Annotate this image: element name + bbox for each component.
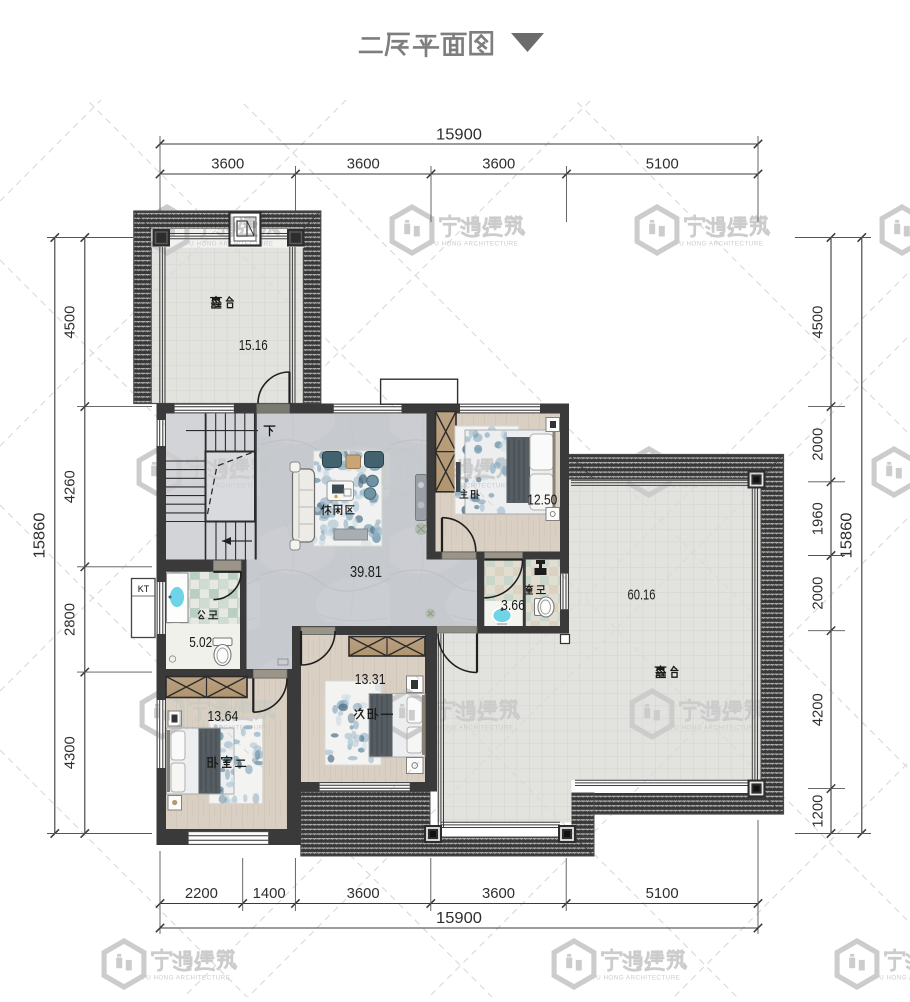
svg-text:15900: 15900: [436, 910, 482, 927]
svg-text:39.81: 39.81: [350, 564, 382, 581]
svg-text:YU HONG ARCHITECTURE: YU HONG ARCHITECTURE: [142, 975, 231, 982]
svg-text:YU HONG ARCHITECTURE: YU HONG ARCHITECTURE: [675, 241, 764, 248]
svg-text:YU HONG ARCHITECTURE: YU HONG ARCHITECTURE: [422, 483, 511, 490]
svg-text:5.02: 5.02: [189, 634, 212, 651]
svg-text:4200: 4200: [810, 693, 827, 726]
svg-text:15900: 15900: [436, 127, 482, 144]
svg-text:15860: 15860: [839, 512, 856, 558]
svg-text:1960: 1960: [810, 502, 827, 535]
svg-text:4260: 4260: [62, 470, 79, 503]
svg-text:13.31: 13.31: [355, 671, 386, 688]
svg-text:3.66: 3.66: [501, 597, 525, 614]
svg-text:1200: 1200: [810, 795, 827, 828]
svg-text:2800: 2800: [62, 603, 79, 636]
svg-text:YU HONG ARCHITECTURE: YU HONG ARCHITECTURE: [670, 725, 759, 732]
svg-text:YU HONG ARCHITECTURE: YU HONG ARCHITECTURE: [875, 975, 910, 982]
svg-text:12.50: 12.50: [527, 492, 557, 509]
svg-text:YU HONG ARCHITECTURE: YU HONG ARCHITECTURE: [425, 725, 514, 732]
svg-text:YU HONG ARCHITECTURE: YU HONG ARCHITECTURE: [430, 241, 519, 248]
svg-text:3600: 3600: [347, 156, 380, 173]
svg-text:4500: 4500: [62, 306, 79, 339]
svg-text:4300: 4300: [62, 736, 79, 769]
svg-text:2000: 2000: [810, 577, 827, 610]
svg-text:3600: 3600: [482, 885, 515, 902]
svg-text:YU HONG ARCHITECTURE: YU HONG ARCHITECTURE: [185, 241, 274, 248]
svg-text:2000: 2000: [810, 428, 827, 461]
svg-text:2200: 2200: [185, 885, 218, 902]
svg-text:15.16: 15.16: [239, 337, 268, 354]
svg-text:KT: KT: [138, 584, 150, 594]
svg-text:YU HONG ARCHITECTURE: YU HONG ARCHITECTURE: [667, 483, 756, 490]
svg-text:YU HONG ARCHITECTURE: YU HONG ARCHITECTURE: [180, 725, 269, 732]
svg-text:5100: 5100: [646, 885, 679, 902]
svg-text:4500: 4500: [810, 306, 827, 339]
svg-text:3600: 3600: [211, 156, 244, 173]
svg-text:60.16: 60.16: [628, 587, 656, 604]
svg-text:YU HONG ARCHITECTURE: YU HONG ARCHITECTURE: [177, 483, 266, 490]
svg-text:3600: 3600: [482, 156, 515, 173]
svg-text:15860: 15860: [32, 512, 49, 558]
svg-text:YU HONG ARCHITECTURE: YU HONG ARCHITECTURE: [592, 975, 681, 982]
svg-text:5100: 5100: [646, 156, 679, 173]
svg-text:1400: 1400: [253, 885, 286, 902]
